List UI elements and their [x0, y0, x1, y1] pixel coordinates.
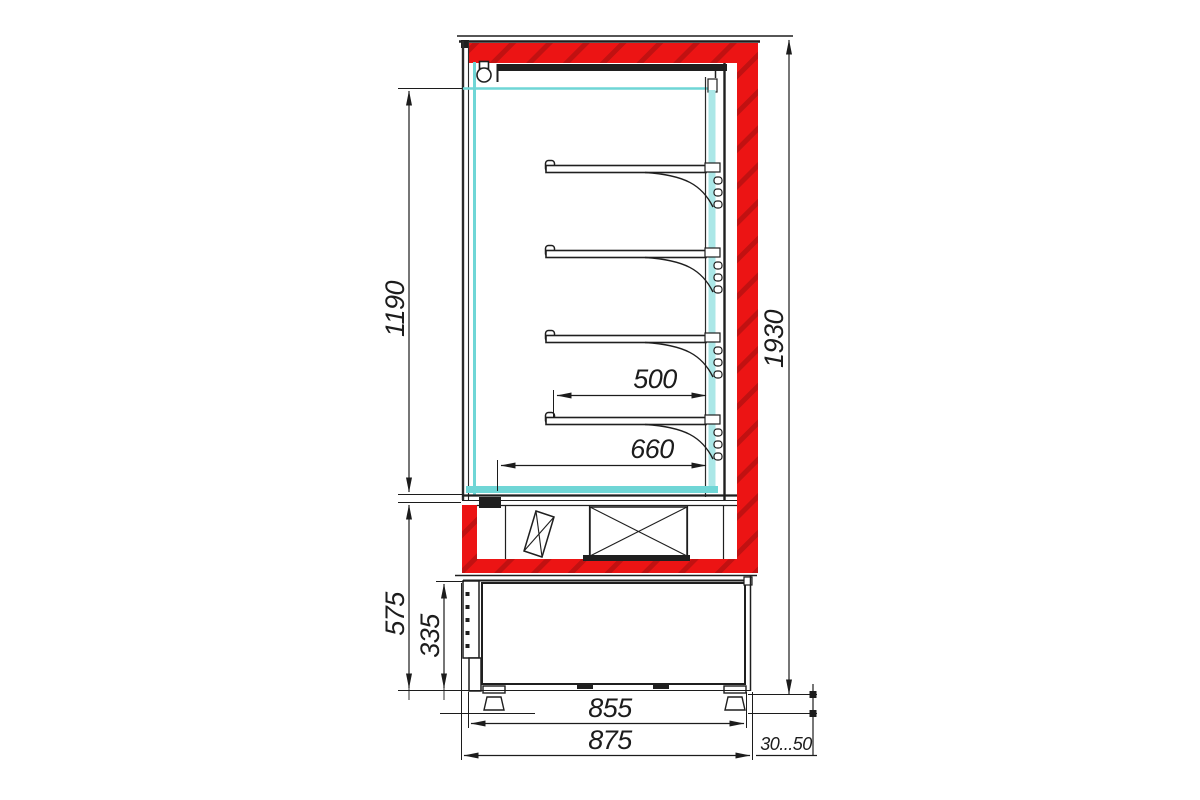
fan-icon — [524, 511, 554, 557]
dim-interior-depth: 660 — [498, 434, 707, 491]
front-glass — [463, 41, 475, 500]
adjustable-foot — [483, 686, 505, 710]
dim-label-interior-depth: 660 — [630, 434, 674, 464]
dim-label-wall-clearance: 30...50 — [760, 734, 812, 754]
dim-base-height: 575 — [380, 503, 461, 689]
adjustable-foot — [724, 686, 746, 710]
dim-shelf-depth: 500 — [554, 364, 707, 418]
drawing-canvas: 1190 575 335 1930 500 660 855 — [0, 0, 1200, 800]
dim-label-overall-depth: 875 — [588, 725, 633, 755]
evaporator-coil-icon — [583, 507, 690, 561]
dim-compartment-height: 335 — [415, 582, 464, 689]
dim-overall-height: 1930 — [759, 40, 789, 694]
dim-label-compartment-height: 335 — [415, 613, 445, 658]
compartment-front-panel — [463, 581, 481, 691]
shelf — [546, 161, 723, 209]
dim-label-base-height: 575 — [380, 591, 410, 636]
dim-base-width: 855 — [469, 692, 747, 728]
front-air-grille — [479, 497, 501, 508]
lamp-icon — [477, 62, 491, 83]
shelf — [546, 246, 723, 294]
machine-compartment — [455, 575, 757, 710]
dim-label-interior-height: 1190 — [380, 280, 410, 337]
bottom-deck — [398, 486, 737, 508]
dim-label-overall-height: 1930 — [759, 309, 789, 368]
technical-drawing: 1190 575 335 1930 500 660 855 — [0, 0, 1200, 800]
canopy — [477, 62, 727, 83]
evaporator-well — [477, 505, 737, 561]
interior-ceiling — [463, 79, 717, 92]
dim-label-base-width: 855 — [588, 693, 633, 723]
dim-label-shelf-depth: 500 — [633, 364, 677, 394]
dim-interior-height: 1190 — [380, 89, 462, 493]
